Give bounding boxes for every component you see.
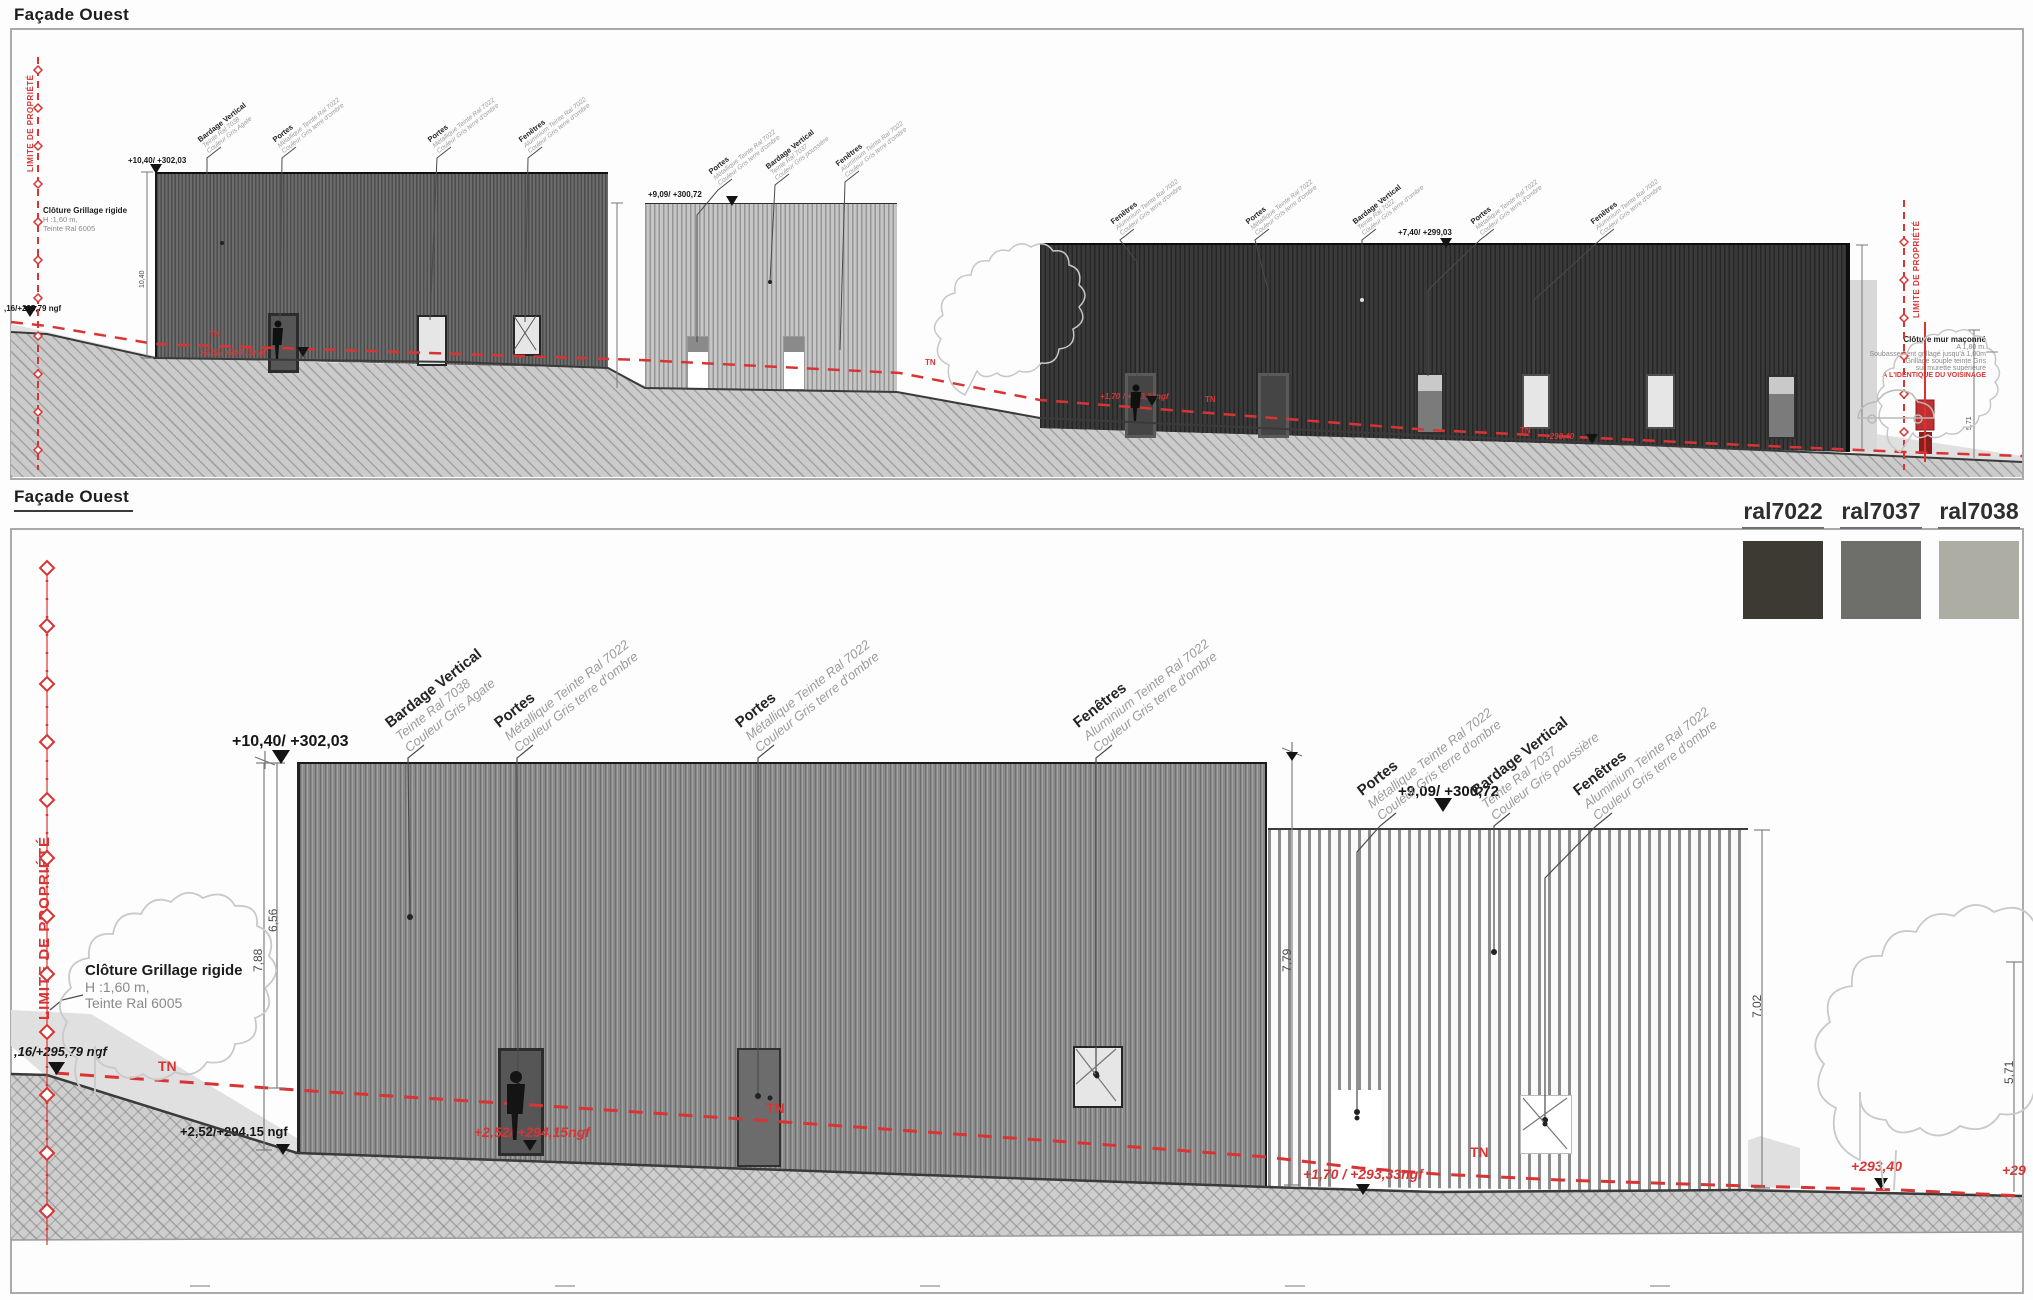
top-r-window-2: [1646, 374, 1675, 429]
red-level-door1: +2,52/ +294,15ngf: [474, 1124, 590, 1140]
tn-label: TN: [766, 1100, 785, 1116]
top-panel-title: Façade Ouest: [14, 5, 133, 30]
legend-label-ral7037: ral7037: [1840, 498, 1922, 529]
main-window-1: [1073, 1046, 1123, 1108]
level-base-left: +2,52/+294,15 ngf: [180, 1124, 288, 1139]
top-building-right: [1040, 243, 1850, 454]
door-lintel: [688, 337, 708, 352]
tn-label: TN: [158, 1058, 177, 1074]
top-r-door-4: [1767, 375, 1796, 439]
top-r-door-2: [1258, 373, 1289, 438]
top-window-2: [513, 315, 541, 356]
second-window-1: [1520, 1095, 1572, 1154]
masonry-note-line: sur murette supérieure: [1790, 365, 1986, 372]
legend-label-ral7038: ral7038: [1938, 498, 2020, 529]
tn-label: TN: [1205, 395, 1216, 404]
fence-note-height: H :1,60 m,: [43, 215, 127, 224]
property-limit-left-label-top: LIMITE DE PROPRIÉTÉ: [26, 74, 35, 172]
top-window-1: [417, 315, 447, 366]
top-door-white-1: [687, 336, 709, 390]
red-level-door3: +1,70 / +293,33ngf: [1303, 1166, 1423, 1182]
legend-swatch-ral7037: [1841, 541, 1921, 619]
red-level-door1-top: +2,52/ +294,15ngf: [200, 348, 266, 357]
legend-swatch-ral7022: [1743, 541, 1823, 619]
tn-label: TN: [1520, 426, 1531, 435]
red-level-right-clipped: +29: [2002, 1162, 2026, 1178]
top-r-door-1: [1125, 373, 1156, 438]
red-level-right: +293,40: [1851, 1158, 1902, 1174]
level-top-of-main: +10,40/ +302,03: [232, 733, 349, 751]
top-door-white-2: [783, 336, 805, 390]
level-top-of-third: +7,40/ +299,03: [1398, 228, 1452, 237]
top-r-window-1: [1522, 374, 1550, 429]
masonry-note-line: Grillage souple teinte Gris: [1790, 358, 1986, 365]
property-limit-right-label-top: LIMITE DE PROPRIÉTÉ: [1912, 220, 1921, 318]
door-vision-panel: [1769, 377, 1794, 394]
door-lintel: [784, 337, 804, 352]
elevation-drawing-sheet: Façade Ouest +10,40/ +302,03 +9,09/ +300…: [0, 0, 2033, 1300]
red-level-right-top: +293,40: [1545, 432, 1574, 441]
red-level-door3-top: +1,70 / +293,33ngf: [1100, 392, 1169, 401]
dim-7-02: 7,02: [1750, 995, 1764, 1018]
fence-note-color: Teinte Ral 6005: [43, 224, 127, 233]
door-vision-panel: [1418, 375, 1442, 391]
dim-6-56: 6,56: [266, 909, 280, 932]
fence-note-height: H :1,60 m,: [85, 979, 243, 995]
main-building: [297, 762, 1270, 1192]
tn-label: TN: [925, 358, 936, 367]
masonry-note-alignment: A L'IDENTIQUE DU VOISINAGE: [1790, 372, 1986, 379]
top-building-left: [155, 172, 610, 370]
fence-note: Clôture Grillage rigide H :1,60 m, Teint…: [85, 962, 243, 1011]
masonry-fence-note: Clôture mur maçonné A 1,80 m. Soubasseme…: [1790, 335, 1986, 379]
level-top-of-second: +9,09/ +300,72: [648, 190, 702, 199]
level-top-of-main: +10,40/ +302,03: [128, 156, 186, 165]
fence-note-title: Clôture Grillage rigide: [85, 962, 243, 979]
tn-label: TN: [1470, 1144, 1489, 1160]
legend-swatch-ral7038: [1939, 541, 2019, 619]
property-limit-label: LIMITE DE PROPRIÉTÉ: [36, 836, 53, 1020]
level-ngf-left: ,16/+295,79 ngf: [4, 304, 61, 313]
masonry-note-line: Clôture mur maçonné: [1790, 335, 1986, 344]
fence-note-title: Clôture Grillage rigide: [43, 206, 127, 215]
masonry-note-line: A 1,80 m.: [1790, 344, 1986, 351]
fence-note-top: Clôture Grillage rigide H :1,60 m, Teint…: [43, 206, 127, 233]
legend-label-ral7022: ral7022: [1742, 498, 1824, 529]
level-ngf-left: ,16/+295,79 ngf: [14, 1044, 107, 1059]
masonry-note-line: Soubassement grillagé jusqu'à 1,00m: [1790, 351, 1986, 358]
top-building-middle: [645, 203, 897, 393]
fence-note-color: Teinte Ral 6005: [85, 995, 243, 1011]
dim-7-79: 7,79: [1280, 949, 1294, 972]
tn-label: TN: [210, 330, 221, 339]
top-door-1: [268, 313, 299, 373]
top-r-door-3: [1416, 373, 1444, 434]
dim-10-40: 10,40: [139, 270, 146, 288]
dim-5-71: 5,71: [2002, 1061, 2016, 1084]
dim-7-88: 7,88: [251, 949, 265, 972]
bottom-panel-title: Façade Ouest: [14, 487, 133, 512]
dim-5-71-top: 5,71: [1966, 416, 1973, 430]
